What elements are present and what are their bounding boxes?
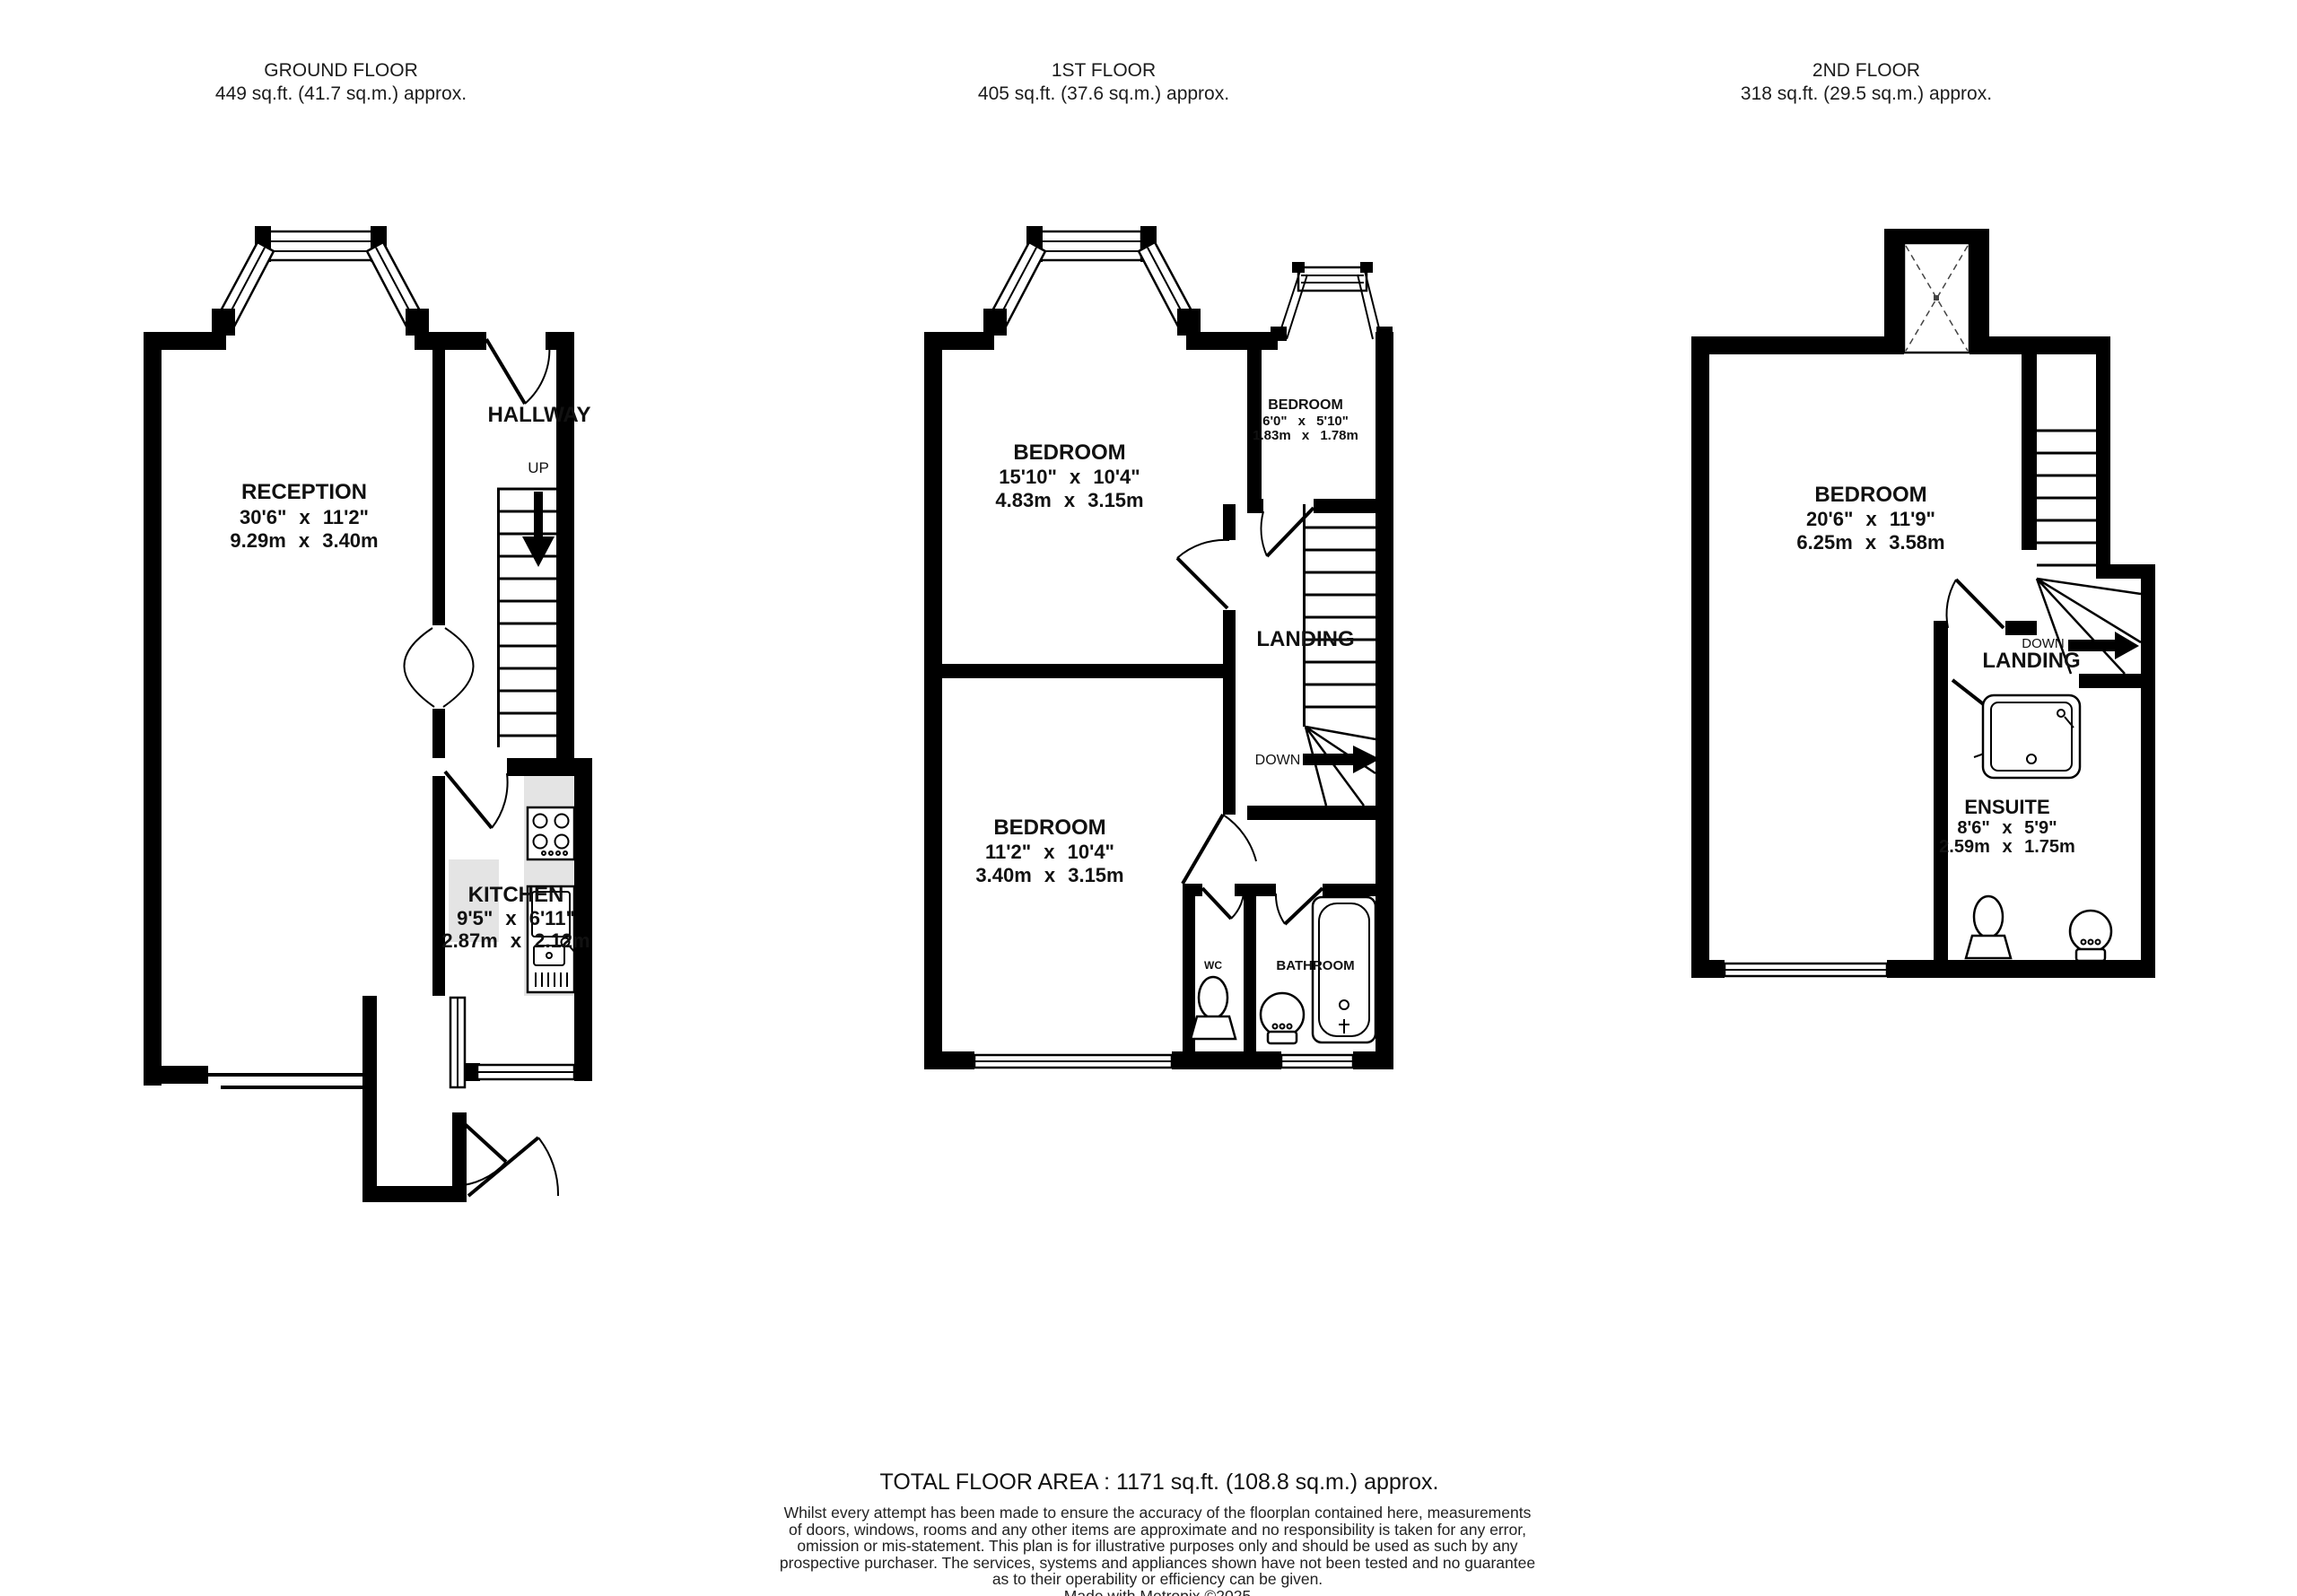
basin-icon — [2070, 911, 2111, 961]
bedroom-back-dims-metric: 3.40m x 3.15m — [975, 864, 1123, 886]
bedroom-back-label: BEDROOM — [993, 815, 1105, 840]
stairs-up-label: UP — [528, 459, 549, 476]
bedroom-label: BEDROOM — [1814, 483, 1926, 507]
window-icon — [974, 1055, 1353, 1068]
hob-icon — [528, 807, 574, 859]
stairs-down-icon — [1303, 504, 1380, 806]
bedroom-front-dims-imperial: 15'10" x 10'4" — [999, 466, 1140, 488]
reception-dims-imperial: 30'6" x 11'2" — [240, 506, 369, 528]
bathroom-label: BATHROOM — [1276, 958, 1354, 973]
ensuite-label: ENSUITE — [1964, 796, 2049, 818]
bedroom-dims-imperial: 20'6" x 11'9" — [1806, 508, 1935, 530]
reception-dims-metric: 9.29m x 3.40m — [230, 529, 378, 552]
wc-label: WC — [1204, 959, 1222, 972]
kitchen-dims-imperial: 9'5" x 6'11" — [457, 907, 575, 929]
skylight-icon — [1904, 243, 1969, 353]
first-floor-plan: BEDROOM 15'10" x 10'4" 4.83m x 3.15m BED… — [924, 226, 1393, 1069]
small-bay-window-icon — [1271, 262, 1393, 341]
disclaimer-line: as to their operability or efficiency ca… — [565, 1572, 1750, 1588]
ensuite-dims-imperial: 8'6" x 5'9" — [1957, 818, 2057, 838]
landing-label: LANDING — [1256, 627, 1354, 651]
bay-window-icon — [212, 226, 429, 336]
hallway-label: HALLWAY — [487, 403, 590, 427]
reception-label: RECEPTION — [241, 480, 367, 504]
window-icon — [1725, 964, 1887, 976]
total-floor-area: TOTAL FLOOR AREA : 1171 sq.ft. (108.8 sq… — [576, 1470, 1742, 1496]
floorplan-drawing: RECEPTION 30'6" x 11'2" 9.29m x 3.40m HA… — [0, 0, 2297, 1596]
disclaimer-line: Whilst every attempt has been made to en… — [565, 1505, 1750, 1522]
metropix-credit: Made with Metropix ©2025 — [565, 1589, 1750, 1596]
toilet-icon — [1966, 896, 2011, 958]
disclaimer-line: prospective purchaser. The services, sys… — [565, 1556, 1750, 1572]
landing-label: LANDING — [1982, 649, 2080, 673]
disclaimer: Whilst every attempt has been made to en… — [565, 1505, 1750, 1596]
ensuite-dims-metric: 2.59m x 1.75m — [1939, 837, 2075, 857]
bedroom-small-dims-metric: 1.83m x 1.78m — [1253, 428, 1358, 443]
bedroom-front-label: BEDROOM — [1013, 440, 1125, 465]
bay-window-icon — [983, 226, 1201, 336]
toilet-icon — [1191, 977, 1236, 1039]
bedroom-back-dims-imperial: 11'2" x 10'4" — [985, 841, 1114, 863]
disclaimer-line: omission or mis-statement. This plan is … — [565, 1539, 1750, 1555]
stairs-up-icon — [497, 489, 556, 747]
bedroom-small-dims-imperial: 6'0" x 5'10" — [1262, 414, 1349, 429]
second-floor-plan: BEDROOM 20'6" x 11'9" 6.25m x 3.58m DOWN… — [1691, 229, 2155, 978]
ground-floor-plan: RECEPTION 30'6" x 11'2" 9.29m x 3.40m HA… — [144, 226, 592, 1202]
basin-icon — [1261, 993, 1304, 1043]
bedroom-front-dims-metric: 4.83m x 3.15m — [995, 489, 1143, 511]
disclaimer-line: of doors, windows, rooms and any other i… — [565, 1522, 1750, 1539]
floorplan-canvas: GROUND FLOOR 449 sq.ft. (41.7 sq.m.) app… — [0, 0, 2297, 1596]
kitchen-dims-metric: 2.87m x 2.12m — [441, 929, 590, 952]
door-swings — [1177, 508, 1323, 924]
shower-icon — [1983, 695, 2080, 778]
kitchen-label: KITCHEN — [468, 883, 564, 907]
bedroom-dims-metric: 6.25m x 3.58m — [1796, 531, 1944, 554]
stairs-down-label: DOWN — [1255, 753, 1301, 768]
bedroom-small-label: BEDROOM — [1268, 397, 1343, 413]
